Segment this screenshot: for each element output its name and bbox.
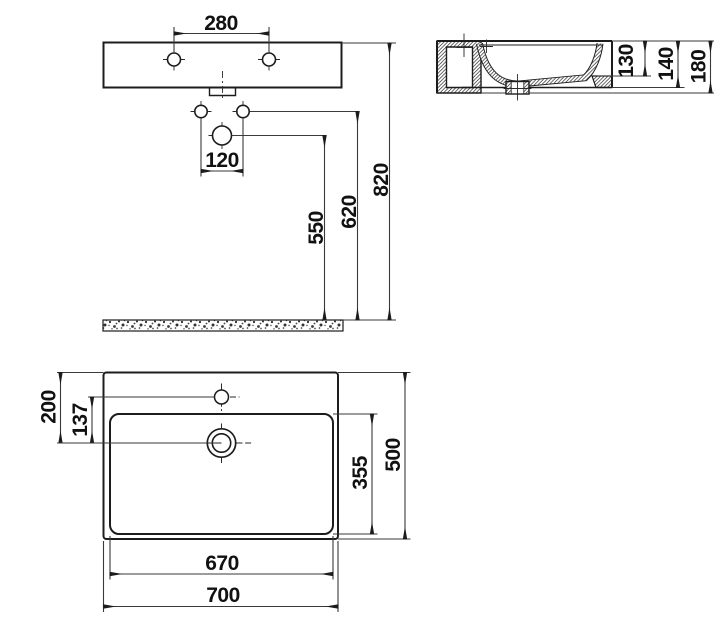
- washbasin-technical-drawing: 280 120 550 620 820: [0, 0, 718, 632]
- dim-label-550: 550: [305, 211, 328, 245]
- dim-label-140: 140: [655, 47, 678, 81]
- dim-355-bowl-depth: 355: [333, 414, 378, 534]
- dim-label-120: 120: [205, 149, 239, 172]
- plan-view: 137 200 355 500: [38, 373, 411, 613]
- dim-670-bowl-width: 670: [110, 536, 333, 580]
- dim-label-280: 280: [204, 12, 238, 35]
- dim-label-137: 137: [69, 403, 92, 437]
- dim-820-rim-height: 820: [342, 43, 397, 320]
- dim-500-overall-depth: 500: [338, 373, 411, 540]
- dim-label-500: 500: [382, 438, 405, 472]
- fixing-hole-left: [191, 101, 212, 122]
- dim-label-700: 700: [206, 584, 240, 607]
- floor-line: [103, 320, 396, 331]
- dim-label-130: 130: [615, 44, 638, 78]
- basin-body-front: [104, 43, 342, 88]
- front-wall-section: [592, 76, 612, 88]
- dim-label-820: 820: [370, 163, 393, 197]
- dim-130-bowl-depth: 130: [615, 41, 645, 78]
- dim-label-620: 620: [338, 195, 361, 229]
- bowl-shell-section: [480, 44, 601, 84]
- floor-hatch-strip: [103, 320, 343, 331]
- side-section-view: 130 140 180: [437, 34, 714, 101]
- dim-label-670: 670: [205, 552, 239, 575]
- back-wall-section: [437, 41, 481, 93]
- dim-label-355: 355: [349, 455, 372, 489]
- dim-140-front-height: 140: [655, 41, 678, 88]
- drawing-sheet: 280 120 550 620 820: [0, 0, 718, 632]
- drain-outlet-front: [209, 122, 236, 149]
- dim-550-drain-height: 550: [232, 136, 328, 321]
- front-elevation-view: 280 120 550 620 820: [103, 12, 396, 331]
- dim-label-200: 200: [38, 390, 61, 424]
- dim-label-180: 180: [688, 50, 711, 84]
- dim-180-overall-height: 180: [688, 41, 711, 93]
